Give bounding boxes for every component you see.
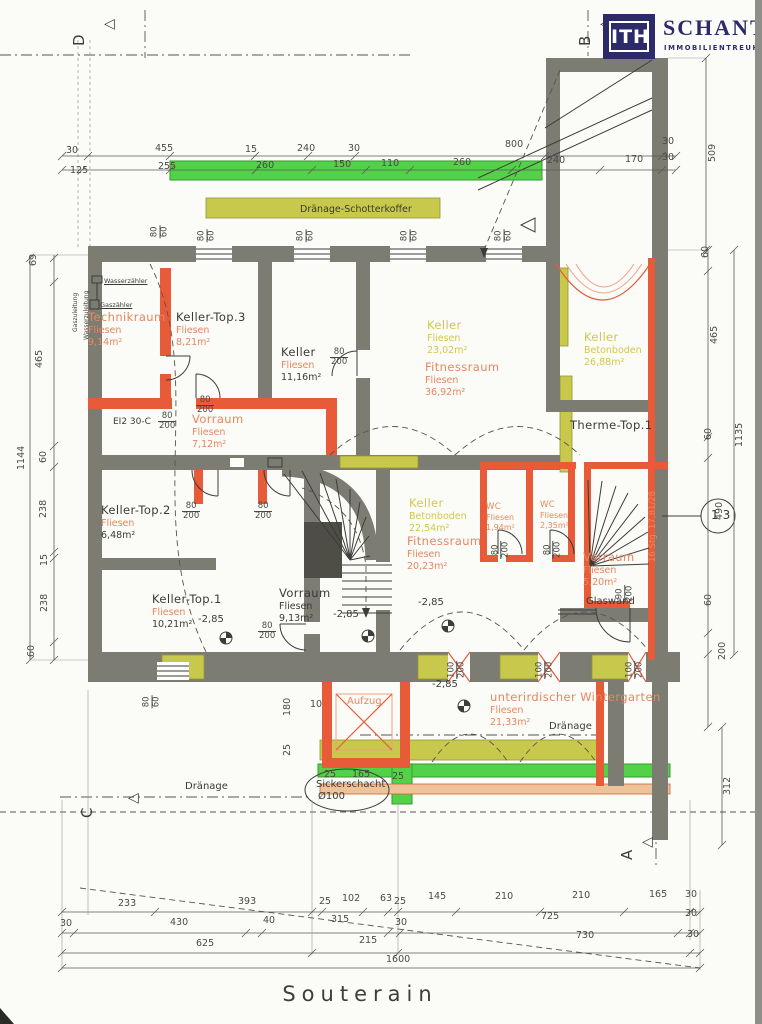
room-text: 9,13m²: [279, 613, 331, 625]
dimension-label: 200: [718, 642, 728, 660]
room-text: 6,48m²: [101, 530, 171, 542]
dimension-label: 490: [715, 502, 725, 520]
room-text: Therme-Top.1: [570, 418, 652, 433]
opening-size-label: 8060: [151, 225, 171, 238]
dimension-label: 625: [196, 939, 214, 949]
scan-edge: [755, 0, 762, 1024]
room-wc-2: WCFliesen2,35m²: [540, 500, 569, 532]
room-text: 11,16m²: [281, 372, 321, 384]
opening-size-label: 80200: [543, 541, 563, 559]
section-marker-arrow: ◁: [642, 834, 653, 850]
dimension-label: 25: [394, 897, 406, 907]
room-text: Keller-Top.3: [176, 310, 246, 325]
opening-size-label: 80200: [182, 502, 200, 522]
dimension-label: 60: [39, 451, 49, 463]
logo-name: SCHANTL: [663, 15, 762, 41]
room-text: Technikraum: [88, 310, 166, 325]
dimension-label: 260: [256, 161, 274, 171]
section-marker-arrow: ◁: [104, 16, 115, 32]
room-text: 9,14m²: [88, 337, 166, 349]
room-vorraum-5: VorraumFliesen5,20m²: [583, 550, 635, 590]
dimension-label: 25: [324, 770, 336, 780]
dimension-label: 30: [60, 919, 72, 929]
dimension-label: 312: [723, 777, 733, 795]
room-text: 2,35m²: [540, 521, 569, 531]
opening-size-label: 8060: [495, 229, 515, 242]
room-fitnessraum-20: FitnessraumFliesen20,23m²: [407, 534, 482, 574]
room-text: Fliesen: [490, 705, 661, 717]
room-text: Fliesen: [486, 513, 515, 523]
level-marker-icon: [220, 632, 232, 644]
room-text: 36,92m²: [425, 387, 500, 399]
level-label: -2,85: [418, 598, 444, 608]
dimension-label: 725: [541, 912, 559, 922]
dimension-label: 145: [428, 892, 446, 902]
dimension-label: 215: [359, 936, 377, 946]
scan-corner: [0, 1008, 14, 1024]
dimension-label: 25: [319, 897, 331, 907]
room-text: 23,02m²: [427, 345, 467, 357]
section-marker-d: D: [70, 34, 88, 46]
dimension-label: 30: [685, 890, 697, 900]
level-label: -2,85: [198, 615, 224, 625]
opening-size-label: 8060: [401, 229, 421, 242]
stair-count-label: 16 Stg. 17,81/28: [649, 491, 658, 562]
room-text: Keller: [281, 345, 321, 360]
dimension-label: 180: [283, 698, 293, 716]
dimension-label: 25: [392, 772, 404, 782]
sickerschacht-diameter: Ø100: [318, 792, 345, 802]
opening-size-label: 100200: [535, 661, 555, 679]
dimension-label: 233: [118, 899, 136, 909]
gaszaehler-label: Gaszähler: [100, 302, 132, 309]
room-technikraum: TechnikraumFliesen9,14m²: [88, 310, 166, 350]
aufzug-label: Aufzug: [347, 697, 382, 707]
room-therme-top1: Therme-Top.1: [570, 418, 652, 433]
dimension-label: 170: [625, 155, 643, 165]
opening-size-label: 80200: [491, 541, 511, 559]
dimension-label: 60: [27, 645, 37, 657]
room-text: Betonboden: [409, 511, 467, 523]
dimension-label: 30: [662, 153, 674, 163]
room-vorraum-7: VorraumFliesen7,12m²: [192, 412, 244, 452]
room-text: Fliesen: [88, 325, 166, 337]
dimension-label: 15: [245, 145, 257, 155]
dimension-label: 255: [158, 162, 176, 172]
room-text: 1,94m²: [486, 523, 515, 533]
room-text: Fliesen: [407, 549, 482, 561]
dimension-label: 1600: [386, 955, 410, 965]
logo-abbr: ITH: [609, 21, 649, 52]
room-text: 7,12m²: [192, 439, 244, 451]
room-text: Fitnessraum: [425, 360, 500, 375]
dimension-label: 60: [704, 594, 714, 606]
section-marker-c: C: [78, 808, 96, 818]
draenage-label-left: Dränage: [185, 782, 228, 792]
dimension-label: 430: [170, 918, 188, 928]
opening-size-label: 8060: [198, 229, 218, 242]
room-keller-23: KellerFliesen23,02m²: [427, 318, 467, 358]
floorplan-page: TechnikraumFliesen9,14m²Keller-Top.3Flie…: [0, 0, 762, 1024]
draenage-schotterkoffer-label: Dränage-Schotterkoffer: [300, 205, 412, 215]
room-text: 8,21m²: [176, 337, 246, 349]
room-text: Fliesen: [101, 518, 171, 530]
dimension-label: 238: [39, 500, 49, 518]
fire-door-label: EI2 30-C: [113, 418, 151, 427]
dimension-label: 15: [40, 554, 50, 566]
dimension-label: 30: [66, 146, 78, 156]
dimension-label: 210: [572, 891, 590, 901]
logo-mark: ITH: [603, 14, 655, 59]
room-fitnessraum-36: FitnessraumFliesen36,92m²: [425, 360, 500, 400]
dimension-label: 125: [70, 166, 88, 176]
opening-size-label: 80200: [258, 622, 276, 642]
dimension-label: 110: [381, 159, 399, 169]
room-wc-1: WCFliesen1,94m²: [486, 502, 515, 534]
sickerschacht-label: Sickerschacht: [316, 780, 385, 790]
dimension-label: 238: [40, 594, 50, 612]
dimension-label: 10: [310, 700, 322, 710]
dimension-label: 210: [495, 892, 513, 902]
level-marker-icon: [362, 630, 374, 642]
level-label: -2,85: [432, 680, 458, 690]
room-text: Fliesen: [279, 601, 331, 613]
opening-size-label: 100200: [625, 661, 645, 679]
logo-subtitle: IMMOBILIENTREUHAND: [664, 44, 762, 52]
opening-size-label: 80200: [158, 412, 176, 432]
room-vorraum-9: VorraumFliesen9,13m²: [279, 586, 331, 626]
room-text: Fliesen: [540, 511, 569, 521]
opening-size-label: 80200: [254, 502, 272, 522]
level-marker-icon: [442, 620, 454, 632]
dimension-label: 1135: [735, 423, 745, 447]
dimension-label: 30: [662, 137, 674, 147]
dimension-label: 165: [352, 770, 370, 780]
dimension-label: 730: [576, 931, 594, 941]
draenage-label-mid: Dränage: [549, 722, 592, 732]
level-label: -2,85: [333, 610, 359, 620]
room-text: Keller: [427, 318, 467, 333]
room-text: 20,23m²: [407, 561, 482, 573]
opening-size-label: 8060: [297, 229, 317, 242]
level-marker-icon: [458, 700, 470, 712]
dimension-label: 800: [505, 140, 523, 150]
dimension-label: 393: [238, 897, 256, 907]
plan-title: Souterain: [210, 982, 510, 1006]
room-text: Keller-Top.2: [101, 503, 171, 518]
room-text: unterirdischer Wintergarten: [490, 690, 661, 705]
dimension-label: 60: [701, 246, 711, 258]
room-text: Keller-Top.1: [152, 592, 222, 607]
dimension-label: 315: [331, 915, 349, 925]
dimension-label: 30: [687, 930, 699, 940]
gaszuleitung-label: Gaszuleitung: [73, 293, 79, 332]
opening-size-label: 8060: [143, 695, 163, 708]
room-text: Fliesen: [583, 565, 635, 577]
section-marker-a: A: [618, 850, 636, 860]
room-text: Fliesen: [427, 333, 467, 345]
dimension-label: 165: [649, 890, 667, 900]
opening-size-label: 80200: [196, 396, 214, 416]
room-text: Fliesen: [281, 360, 321, 372]
dimension-label: 30: [685, 909, 697, 919]
room-text: Vorraum: [583, 550, 635, 565]
dimension-label: 260: [453, 158, 471, 168]
room-text: Vorraum: [279, 586, 331, 601]
dimension-label: 455: [155, 144, 173, 154]
room-text: Betonboden: [584, 345, 642, 357]
room-keller-top1: Keller-Top.1Fliesen10,21m²: [152, 592, 222, 632]
opening-size-label: 100200: [447, 661, 467, 679]
room-text: Keller: [584, 330, 642, 345]
dimension-label: 150: [333, 160, 351, 170]
room-text: Fliesen: [192, 427, 244, 439]
dimension-label: 63: [380, 894, 392, 904]
room-keller-top3: Keller-Top.3Fliesen8,21m²: [176, 310, 246, 350]
wasserzaehler-label: Wasserzähler: [104, 278, 147, 285]
section-marker-arrow: ◁: [128, 790, 139, 806]
opening-size-label: 90200: [615, 585, 635, 603]
dimension-label: 102: [342, 894, 360, 904]
dimension-label: 465: [710, 326, 720, 344]
room-text: Fliesen: [425, 375, 500, 387]
dimension-label: 30: [348, 144, 360, 154]
dimension-label: 240: [297, 144, 315, 154]
agency-logo: ITH SCHANTL IMMOBILIENTREUHAND: [601, 12, 761, 62]
opening-size-label: 80200: [330, 348, 348, 368]
room-text: 26,88m²: [584, 357, 642, 369]
dimension-label: 30: [395, 918, 407, 928]
section-lines: [0, 10, 756, 868]
room-text: WC: [540, 500, 569, 511]
wasserzuleitung-label: Wasserzuleitung: [84, 291, 90, 340]
dimension-label: 240: [547, 156, 565, 166]
dimension-label: 1144: [17, 446, 27, 470]
section-marker-b: B: [576, 36, 594, 46]
dimension-label: 465: [35, 350, 45, 368]
dimension-label: 25: [283, 744, 293, 756]
dimension-label: 509: [708, 144, 718, 162]
room-keller-top2: Keller-Top.2Fliesen6,48m²: [101, 503, 171, 543]
room-keller-26: KellerBetonboden26,88m²: [584, 330, 642, 370]
room-text: Keller: [409, 496, 467, 511]
room-keller-22: KellerBetonboden22,54m²: [409, 496, 467, 536]
room-text: Fliesen: [176, 325, 246, 337]
dimension-label: 60: [704, 428, 714, 440]
room-text: WC: [486, 502, 515, 513]
dimension-label: 69: [29, 254, 39, 266]
room-text: Fitnessraum: [407, 534, 482, 549]
dimension-label: 40: [263, 916, 275, 926]
room-keller-11: KellerFliesen11,16m²: [281, 345, 321, 385]
